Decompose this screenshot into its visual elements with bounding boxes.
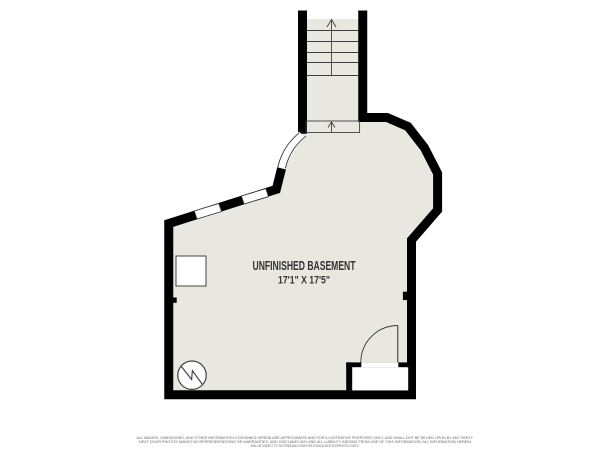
svg-text:SHALL BE SUBJECT TO THE TERMS: SHALL BE SUBJECT TO THE TERMS AND CONDIT…	[251, 444, 360, 448]
svg-text:17'1" X 17'5": 17'1" X 17'5"	[278, 275, 330, 287]
svg-text:UNFINISHED BASEMENT: UNFINISHED BASEMENT	[253, 259, 356, 273]
